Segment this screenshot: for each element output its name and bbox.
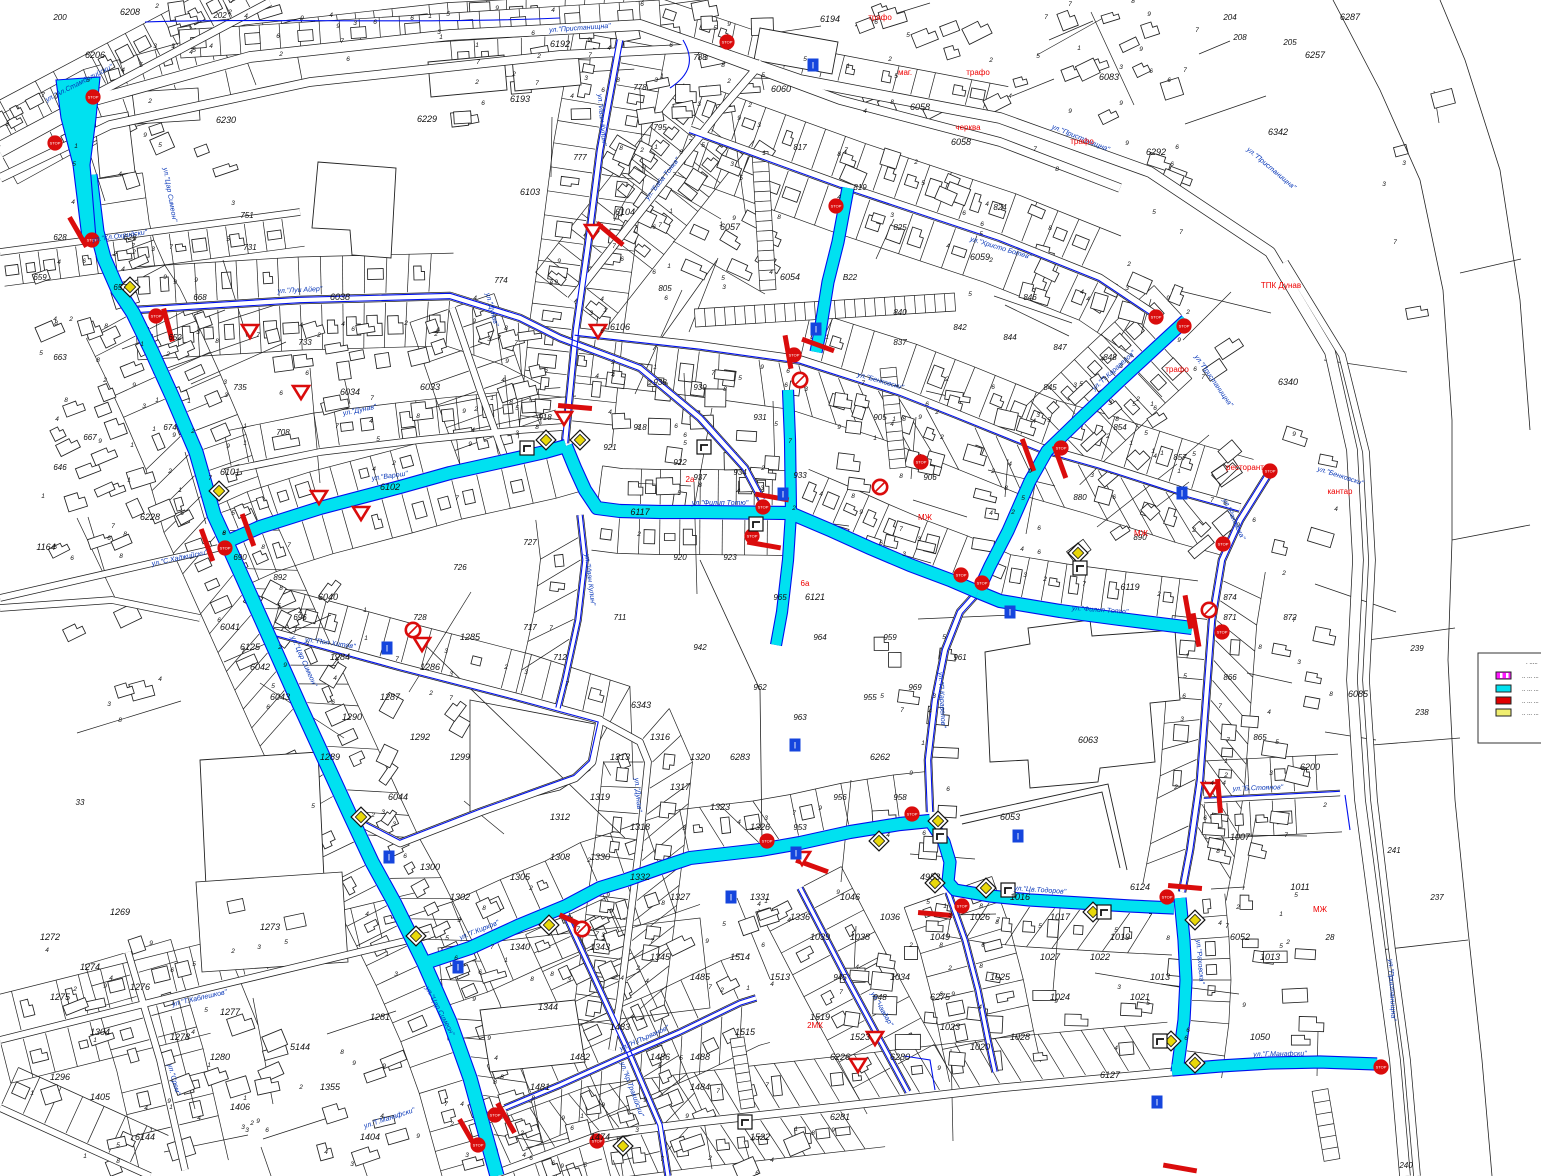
svg-text:трафо: трафо xyxy=(868,13,892,22)
svg-text:6: 6 xyxy=(669,42,673,49)
svg-text:. .....: . ..... xyxy=(1526,660,1538,666)
svg-text:1: 1 xyxy=(794,1126,798,1133)
svg-text:3: 3 xyxy=(196,329,200,336)
svg-text:9: 9 xyxy=(859,509,863,516)
svg-text:5: 5 xyxy=(1132,401,1136,408)
svg-text:2: 2 xyxy=(1135,396,1140,403)
svg-text:1017: 1017 xyxy=(1050,912,1071,922)
svg-text:6229: 6229 xyxy=(417,114,437,124)
svg-text:5: 5 xyxy=(774,421,778,428)
svg-text:ул."Г.Манафски": ул."Г.Манафски" xyxy=(1252,1051,1307,1059)
svg-text:2: 2 xyxy=(887,56,892,63)
svg-text:3: 3 xyxy=(350,1161,354,1168)
svg-text:I: I xyxy=(794,741,797,751)
svg-text:4: 4 xyxy=(890,421,894,428)
svg-text:4: 4 xyxy=(197,1115,201,1122)
svg-text:2: 2 xyxy=(913,159,918,166)
svg-text:I: I xyxy=(795,849,798,859)
svg-text:3: 3 xyxy=(584,75,588,82)
svg-text:2: 2 xyxy=(316,332,321,339)
svg-text:1: 1 xyxy=(669,208,673,215)
svg-text:964: 964 xyxy=(813,633,827,642)
svg-text:5: 5 xyxy=(1079,381,1083,388)
svg-text:2: 2 xyxy=(428,690,433,697)
svg-text:4: 4 xyxy=(1114,1045,1118,1052)
svg-text:9: 9 xyxy=(1139,46,1143,53)
svg-text:1305: 1305 xyxy=(510,872,531,882)
svg-text:.. ... ...: .. ... ... xyxy=(1522,687,1539,693)
svg-text:4: 4 xyxy=(71,199,75,206)
svg-text:955: 955 xyxy=(863,693,877,702)
svg-text:920: 920 xyxy=(673,553,687,562)
svg-text:7: 7 xyxy=(708,984,712,991)
svg-text:1: 1 xyxy=(667,263,671,270)
svg-text:659: 659 xyxy=(33,273,47,282)
svg-text:.. ... ...: .. ... ... xyxy=(1522,699,1539,705)
svg-text:2: 2 xyxy=(474,79,479,86)
svg-text:652: 652 xyxy=(168,333,182,342)
svg-text:918: 918 xyxy=(538,413,552,422)
svg-text:4: 4 xyxy=(946,243,950,250)
svg-text:STOP: STOP xyxy=(1179,324,1190,329)
svg-text:6: 6 xyxy=(1203,815,1207,822)
svg-text:6: 6 xyxy=(529,1155,533,1162)
svg-text:STOP: STOP xyxy=(220,546,231,551)
svg-text:7: 7 xyxy=(131,243,135,250)
svg-text:6: 6 xyxy=(1112,494,1116,501)
svg-text:7: 7 xyxy=(650,938,654,945)
svg-text:4: 4 xyxy=(329,12,333,19)
svg-text:5: 5 xyxy=(1192,451,1196,458)
svg-text:6194: 6194 xyxy=(820,14,840,24)
svg-text:1308: 1308 xyxy=(550,852,570,862)
svg-text:STOP: STOP xyxy=(831,204,842,209)
svg-text:1013: 1013 xyxy=(1260,952,1280,962)
svg-text:8: 8 xyxy=(723,386,727,393)
svg-text:6193: 6193 xyxy=(510,94,530,104)
svg-text:1280: 1280 xyxy=(210,1052,230,1062)
svg-text:5: 5 xyxy=(721,275,725,282)
svg-text:2: 2 xyxy=(939,434,944,441)
svg-text:3: 3 xyxy=(1402,160,1406,167)
svg-text:5: 5 xyxy=(942,634,946,641)
svg-text:4: 4 xyxy=(1334,506,1338,513)
svg-text:1: 1 xyxy=(653,364,657,371)
svg-text:7: 7 xyxy=(335,423,339,430)
svg-text:7: 7 xyxy=(565,681,569,688)
svg-text:6: 6 xyxy=(600,328,604,335)
svg-text:6262: 6262 xyxy=(870,752,890,762)
svg-text:846: 846 xyxy=(1023,293,1037,302)
svg-text:28: 28 xyxy=(1325,933,1335,942)
svg-text:8: 8 xyxy=(890,99,894,106)
svg-text:9: 9 xyxy=(951,991,955,998)
svg-text:1: 1 xyxy=(654,144,658,151)
svg-text:3: 3 xyxy=(153,43,157,50)
svg-text:6: 6 xyxy=(266,704,270,711)
svg-text:4: 4 xyxy=(819,491,823,498)
svg-text:9: 9 xyxy=(837,424,841,431)
svg-text:6: 6 xyxy=(1037,525,1041,532)
svg-text:1523: 1523 xyxy=(850,1032,870,1042)
svg-text:7: 7 xyxy=(844,147,848,154)
svg-text:1: 1 xyxy=(762,150,766,157)
svg-text:6: 6 xyxy=(1170,161,1174,168)
svg-text:1019: 1019 xyxy=(1110,932,1130,942)
svg-text:6: 6 xyxy=(346,56,350,63)
svg-text:1036: 1036 xyxy=(880,912,900,922)
svg-text:953: 953 xyxy=(793,823,807,832)
svg-text:8: 8 xyxy=(416,413,420,420)
svg-text:956: 956 xyxy=(833,793,847,802)
svg-text:2: 2 xyxy=(511,71,516,78)
svg-text:667: 667 xyxy=(83,433,97,442)
svg-text:4: 4 xyxy=(372,466,376,473)
svg-text:5: 5 xyxy=(116,1142,120,1149)
svg-text:1332: 1332 xyxy=(630,872,650,882)
svg-text:7: 7 xyxy=(1292,617,1296,624)
svg-text:5: 5 xyxy=(139,62,143,69)
svg-text:6: 6 xyxy=(652,224,656,231)
svg-text:2: 2 xyxy=(990,468,995,475)
svg-text:3: 3 xyxy=(1023,572,1027,579)
svg-text:1317: 1317 xyxy=(670,782,691,792)
svg-text:2: 2 xyxy=(707,1155,712,1162)
svg-text:33: 33 xyxy=(76,798,85,807)
svg-text:7: 7 xyxy=(711,370,715,377)
svg-text:1016: 1016 xyxy=(1010,892,1030,902)
svg-text:7: 7 xyxy=(549,625,553,632)
svg-text:6280: 6280 xyxy=(890,1052,910,1062)
svg-text:7: 7 xyxy=(111,523,115,530)
svg-text:STOP: STOP xyxy=(88,95,99,100)
svg-text:1: 1 xyxy=(83,1153,87,1160)
svg-text:7: 7 xyxy=(287,542,291,549)
svg-text:5: 5 xyxy=(1114,927,1118,934)
svg-text:3: 3 xyxy=(392,821,396,828)
svg-text:3: 3 xyxy=(171,43,175,50)
svg-text:1: 1 xyxy=(149,1127,153,1134)
svg-text:4: 4 xyxy=(620,975,624,982)
svg-text:5: 5 xyxy=(1036,53,1040,60)
svg-text:6: 6 xyxy=(436,327,440,334)
svg-text:2: 2 xyxy=(391,460,396,467)
svg-text:8: 8 xyxy=(493,1079,497,1086)
svg-text:8: 8 xyxy=(1131,0,1135,5)
svg-text:1336: 1336 xyxy=(790,912,810,922)
svg-text:4: 4 xyxy=(522,1152,526,1159)
svg-text:906: 906 xyxy=(923,473,937,482)
svg-text:238: 238 xyxy=(1414,708,1429,717)
svg-text:2: 2 xyxy=(1156,591,1161,598)
svg-text:4: 4 xyxy=(770,1157,774,1164)
svg-text:2: 2 xyxy=(1322,802,1327,809)
svg-text:1304: 1304 xyxy=(90,1027,110,1037)
svg-text:1474: 1474 xyxy=(590,1132,610,1142)
svg-text:1: 1 xyxy=(363,607,367,614)
svg-text:1034: 1034 xyxy=(890,972,910,982)
svg-text:657: 657 xyxy=(113,283,127,292)
svg-text:I: I xyxy=(1009,608,1012,618)
svg-text:1022: 1022 xyxy=(1090,952,1110,962)
svg-text:8: 8 xyxy=(1048,225,1052,232)
svg-text:2: 2 xyxy=(1281,570,1286,577)
svg-text:854: 854 xyxy=(1113,423,1127,432)
svg-text:892: 892 xyxy=(273,573,287,582)
svg-text:9: 9 xyxy=(554,279,558,286)
svg-text:3: 3 xyxy=(1090,472,1094,479)
svg-text:2: 2 xyxy=(1285,939,1290,946)
svg-text:8: 8 xyxy=(64,397,68,404)
svg-text:2: 2 xyxy=(647,380,652,387)
svg-text:I: I xyxy=(1181,489,1184,499)
svg-text:1481: 1481 xyxy=(530,1082,550,1092)
svg-text:3: 3 xyxy=(636,424,640,431)
svg-text:4: 4 xyxy=(109,975,113,982)
svg-text:3: 3 xyxy=(567,977,571,984)
svg-text:934: 934 xyxy=(733,468,747,477)
svg-text:6058: 6058 xyxy=(951,137,971,147)
svg-text:4: 4 xyxy=(769,269,773,276)
svg-text:4: 4 xyxy=(607,45,611,52)
svg-text:239: 239 xyxy=(1409,644,1424,653)
svg-text:6033: 6033 xyxy=(420,382,440,392)
svg-text:208: 208 xyxy=(1232,33,1247,42)
svg-text:8: 8 xyxy=(118,717,122,724)
svg-text:1: 1 xyxy=(169,1104,173,1111)
svg-text:1020: 1020 xyxy=(970,1042,990,1052)
svg-text:727: 727 xyxy=(523,538,537,547)
svg-text:9: 9 xyxy=(609,908,613,915)
svg-text:939: 939 xyxy=(693,383,707,392)
svg-text:9: 9 xyxy=(1119,100,1123,107)
svg-text:4: 4 xyxy=(928,708,932,715)
svg-text:200: 200 xyxy=(52,13,67,22)
svg-text:1284: 1284 xyxy=(330,652,350,662)
svg-text:3: 3 xyxy=(704,55,708,62)
svg-text:2: 2 xyxy=(147,98,152,105)
svg-text:8: 8 xyxy=(619,145,623,152)
svg-text:7: 7 xyxy=(169,244,173,251)
svg-text:5: 5 xyxy=(906,32,910,39)
svg-text:8: 8 xyxy=(504,325,508,332)
svg-text:8: 8 xyxy=(661,900,665,907)
svg-text:9: 9 xyxy=(172,432,176,439)
svg-text:STOP: STOP xyxy=(758,505,769,510)
svg-text:969: 969 xyxy=(908,683,922,692)
svg-text:1: 1 xyxy=(385,951,389,958)
svg-text:961: 961 xyxy=(953,653,966,662)
svg-text:9: 9 xyxy=(194,277,198,284)
svg-text:5: 5 xyxy=(72,161,76,168)
svg-text:2: 2 xyxy=(1235,904,1240,911)
svg-text:9: 9 xyxy=(1166,295,1170,302)
svg-text:3: 3 xyxy=(1382,181,1386,188)
svg-text:6054: 6054 xyxy=(780,272,800,282)
svg-text:6: 6 xyxy=(620,256,624,263)
svg-text:8: 8 xyxy=(482,905,486,912)
svg-text:1: 1 xyxy=(1129,440,1133,447)
svg-text:1: 1 xyxy=(825,334,829,341)
svg-text:3: 3 xyxy=(107,701,111,708)
svg-text:2: 2 xyxy=(988,257,993,264)
svg-text:8: 8 xyxy=(500,1074,504,1081)
svg-text:933: 933 xyxy=(793,471,807,480)
svg-text:842: 842 xyxy=(953,323,967,332)
svg-text:3: 3 xyxy=(524,669,528,676)
svg-text:1: 1 xyxy=(475,42,479,49)
svg-text:6053: 6053 xyxy=(1000,812,1020,822)
svg-text:4: 4 xyxy=(341,321,345,328)
svg-text:3: 3 xyxy=(5,121,9,128)
svg-text:751: 751 xyxy=(240,211,253,220)
svg-text:2МК: 2МК xyxy=(807,1021,823,1030)
svg-text:8: 8 xyxy=(549,280,553,287)
svg-text:STOP: STOP xyxy=(1217,630,1228,635)
svg-text:8: 8 xyxy=(531,1095,535,1102)
svg-text:6а: 6а xyxy=(801,579,810,588)
svg-text:2: 2 xyxy=(1105,433,1110,440)
svg-text:6: 6 xyxy=(652,269,656,276)
svg-text:2: 2 xyxy=(947,965,952,972)
svg-text:4: 4 xyxy=(369,418,373,425)
svg-text:2: 2 xyxy=(68,316,73,323)
svg-text:4: 4 xyxy=(736,488,740,495)
svg-text:9: 9 xyxy=(103,983,107,990)
svg-text:847: 847 xyxy=(1053,343,1067,352)
svg-text:1289: 1289 xyxy=(320,752,340,762)
svg-text:1: 1 xyxy=(504,957,508,964)
svg-text:8: 8 xyxy=(530,976,534,983)
svg-text:4: 4 xyxy=(333,675,337,682)
svg-text:1313: 1313 xyxy=(610,752,630,762)
svg-text:4: 4 xyxy=(57,259,61,266)
svg-text:9: 9 xyxy=(587,37,591,44)
svg-text:1319: 1319 xyxy=(590,792,610,802)
svg-text:3: 3 xyxy=(487,336,491,343)
svg-text:4: 4 xyxy=(244,13,248,20)
svg-text:8: 8 xyxy=(1258,644,1262,651)
svg-text:3: 3 xyxy=(804,386,808,393)
svg-text:4: 4 xyxy=(757,901,761,908)
svg-text:4: 4 xyxy=(1008,461,1012,468)
svg-text:4: 4 xyxy=(121,67,125,74)
svg-text:5: 5 xyxy=(1183,673,1187,680)
svg-text:2: 2 xyxy=(131,249,136,256)
svg-text:819: 819 xyxy=(853,183,867,192)
svg-text:5: 5 xyxy=(739,175,743,182)
svg-text:7: 7 xyxy=(1201,374,1205,381)
svg-text:874: 874 xyxy=(1223,593,1237,602)
svg-text:3: 3 xyxy=(245,1127,249,1134)
svg-text:8: 8 xyxy=(550,971,554,978)
svg-text:731: 731 xyxy=(243,243,256,252)
svg-text:205: 205 xyxy=(1282,38,1297,47)
svg-text:1: 1 xyxy=(873,435,877,442)
svg-text:728: 728 xyxy=(413,613,427,622)
svg-text:3: 3 xyxy=(601,932,605,939)
svg-text:6: 6 xyxy=(640,1,644,8)
svg-text:9: 9 xyxy=(1068,108,1072,115)
svg-text:2: 2 xyxy=(1191,527,1196,534)
svg-text:6: 6 xyxy=(331,699,335,706)
svg-text:1: 1 xyxy=(1150,401,1154,408)
svg-text:1345: 1345 xyxy=(650,952,671,962)
svg-text:9: 9 xyxy=(487,1035,491,1042)
svg-text:931: 931 xyxy=(753,413,766,422)
svg-text:6042: 6042 xyxy=(250,662,270,672)
svg-text:3: 3 xyxy=(1269,770,1273,777)
svg-text:5: 5 xyxy=(677,490,681,497)
svg-text:6: 6 xyxy=(1252,517,1256,524)
svg-text:5: 5 xyxy=(738,375,742,382)
svg-text:2: 2 xyxy=(298,1084,303,1091)
svg-text:9: 9 xyxy=(505,358,509,365)
svg-text:1: 1 xyxy=(364,635,368,642)
svg-text:7: 7 xyxy=(208,475,212,482)
svg-text:778: 778 xyxy=(633,83,647,92)
svg-text:3: 3 xyxy=(757,122,761,129)
svg-text:2: 2 xyxy=(403,320,408,327)
svg-text:9: 9 xyxy=(98,438,102,445)
svg-text:6228: 6228 xyxy=(140,512,160,522)
svg-text:711: 711 xyxy=(614,613,627,622)
svg-text:4: 4 xyxy=(1020,546,1024,553)
svg-text:5: 5 xyxy=(713,25,717,32)
svg-text:6257: 6257 xyxy=(1305,50,1326,60)
svg-text:6: 6 xyxy=(478,969,482,976)
svg-text:2: 2 xyxy=(278,51,283,58)
svg-text:9: 9 xyxy=(918,414,922,421)
svg-text:B22: B22 xyxy=(843,273,858,282)
svg-text:5: 5 xyxy=(679,1055,683,1062)
svg-text:9: 9 xyxy=(705,938,709,945)
svg-text:6104: 6104 xyxy=(615,207,635,217)
svg-text:4953: 4953 xyxy=(920,872,940,882)
svg-text:1296: 1296 xyxy=(50,1072,70,1082)
svg-text:9: 9 xyxy=(468,441,472,448)
svg-text:1: 1 xyxy=(30,1090,34,1097)
svg-text:1028: 1028 xyxy=(1010,1032,1030,1042)
svg-text:STOP: STOP xyxy=(907,812,918,817)
svg-text:3: 3 xyxy=(1036,412,1040,419)
svg-text:6192: 6192 xyxy=(550,39,570,49)
svg-text:1023: 1023 xyxy=(940,1022,960,1032)
svg-text:STOP: STOP xyxy=(1151,315,1162,320)
svg-text:6: 6 xyxy=(70,555,74,562)
svg-text:7: 7 xyxy=(256,332,260,339)
svg-text:805: 805 xyxy=(658,284,672,293)
svg-text:6287: 6287 xyxy=(1340,12,1361,22)
svg-text:5: 5 xyxy=(1275,739,1279,746)
svg-text:3: 3 xyxy=(697,101,701,108)
svg-text:240: 240 xyxy=(1398,1161,1413,1170)
svg-text:9: 9 xyxy=(560,1163,564,1170)
svg-text:922: 922 xyxy=(673,458,687,467)
svg-text:3: 3 xyxy=(142,403,146,410)
svg-text:7: 7 xyxy=(576,926,580,933)
svg-text:6: 6 xyxy=(279,390,283,397)
svg-text:3: 3 xyxy=(1108,400,1112,407)
svg-text:6: 6 xyxy=(107,535,111,542)
svg-text:STOP: STOP xyxy=(916,460,927,465)
svg-text:8: 8 xyxy=(1166,935,1170,942)
svg-text:9: 9 xyxy=(336,23,340,30)
svg-text:6: 6 xyxy=(1193,366,1197,373)
svg-text:9: 9 xyxy=(173,279,177,286)
svg-text:9: 9 xyxy=(256,1118,260,1125)
svg-text:1026: 1026 xyxy=(970,912,990,922)
